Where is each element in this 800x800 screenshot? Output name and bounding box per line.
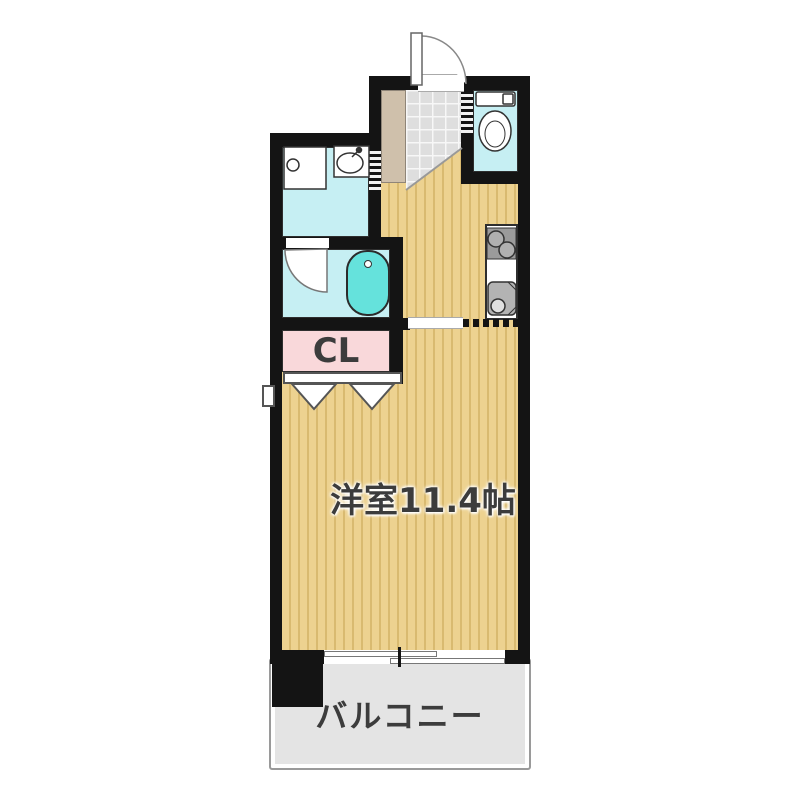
balcony-label: バルコニー bbox=[315, 691, 484, 737]
wall-right bbox=[518, 76, 530, 664]
window-center-tick bbox=[398, 647, 401, 667]
closet-label: CL bbox=[313, 331, 360, 371]
closet-bifold-door bbox=[283, 372, 402, 384]
kitchen-counter bbox=[485, 224, 518, 320]
partition-opening bbox=[408, 317, 463, 329]
kitchen-boundary-dashed-line bbox=[463, 319, 518, 327]
pillar bbox=[272, 652, 323, 707]
washroom bbox=[282, 147, 369, 237]
wall-toilet-bottom bbox=[461, 172, 530, 184]
bathroom bbox=[282, 249, 390, 318]
closet: CL bbox=[282, 330, 390, 372]
western-room-label: 洋室11.4帖 bbox=[330, 473, 516, 522]
wall-bathroom-bottom bbox=[270, 318, 410, 330]
toilet-room bbox=[473, 90, 518, 172]
floor-plan: CL バルコニー bbox=[0, 0, 800, 800]
western-room-label-box: 洋室11.4帖 bbox=[293, 477, 553, 517]
meter-box bbox=[262, 385, 275, 407]
bathroom-door-opening bbox=[286, 238, 329, 248]
sliding-window-panel-left bbox=[324, 651, 437, 657]
toilet-sliding-door bbox=[461, 92, 473, 136]
entrance-opening bbox=[418, 74, 464, 92]
washroom-sliding-door bbox=[369, 150, 381, 193]
wall-washroom-top bbox=[270, 133, 381, 147]
sliding-window-panel-right bbox=[390, 658, 505, 664]
outside-area bbox=[0, 0, 369, 133]
shoe-cabinet bbox=[381, 90, 406, 183]
wall-bathroom-right bbox=[390, 237, 403, 384]
